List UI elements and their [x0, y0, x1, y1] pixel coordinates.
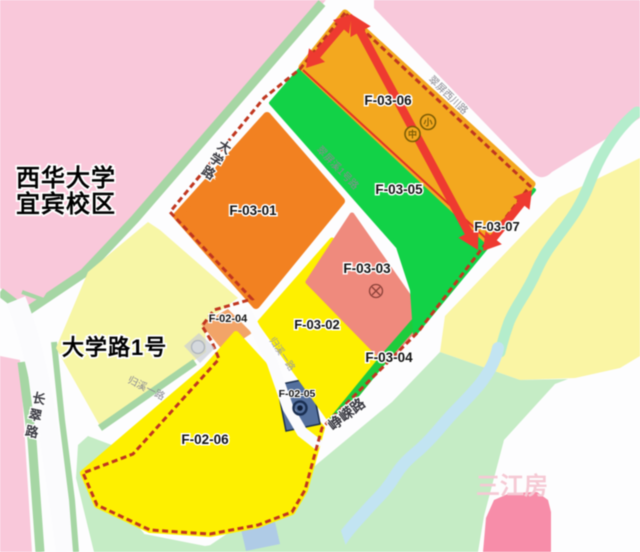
svg-text:中: 中 [408, 129, 417, 140]
svg-text:F-03-07: F-03-07 [474, 219, 520, 234]
svg-text:F-03-06: F-03-06 [364, 93, 412, 108]
svg-text:F-03-05: F-03-05 [375, 182, 423, 197]
svg-text:小: 小 [422, 117, 432, 128]
svg-text:F-03-04: F-03-04 [365, 350, 413, 365]
svg-text:F-03-01: F-03-01 [229, 203, 277, 218]
svg-text:F-03-03: F-03-03 [343, 261, 391, 276]
svg-text:F-02-06: F-02-06 [181, 432, 229, 447]
svg-text:大学路1号: 大学路1号 [62, 335, 167, 360]
svg-text:F-03-02: F-03-02 [294, 317, 340, 332]
svg-text:F-02-04: F-02-04 [209, 313, 248, 325]
svg-text:西华大学: 西华大学 [16, 164, 116, 192]
svg-text:三江房: 三江房 [476, 472, 548, 500]
svg-text:宜宾校区: 宜宾校区 [16, 190, 116, 218]
svg-text:F-02-05: F-02-05 [279, 388, 316, 400]
